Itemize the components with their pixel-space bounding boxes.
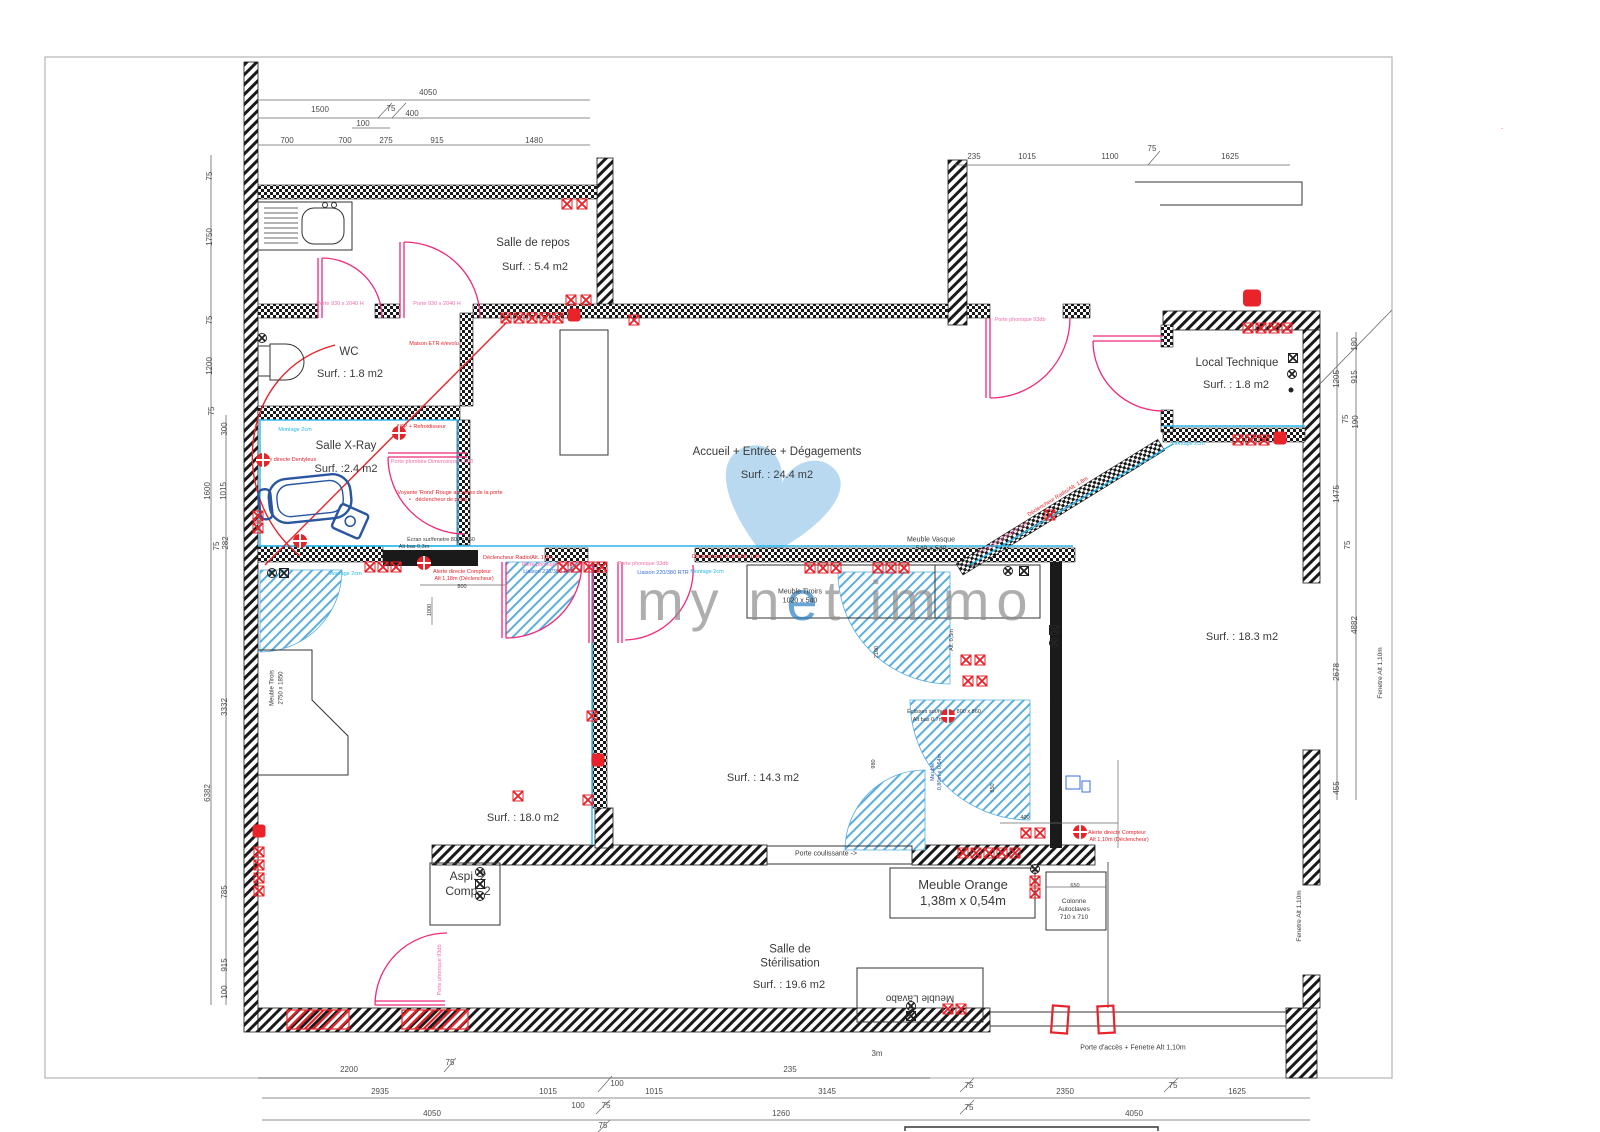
electrical-outlet-symbol [1289,388,1294,393]
electrical-outlet-symbol [513,791,524,802]
electrical-outlet-symbol [253,511,264,522]
electrical-outlet-symbol [279,568,289,578]
dimension-lines [211,100,1392,1132]
electrical-outlet-symbol [818,563,829,574]
electrical-outlet-symbol [553,313,564,324]
electrical-outlet-symbol [254,886,265,897]
solid-walls [383,550,1062,848]
floorplan-page: my net immo Salle de reposSurf. : 5.4 m2… [0,0,1600,1132]
electrical-outlet-symbol [1049,638,1059,648]
furniture-outlines [258,182,1302,1131]
electrical-outlet-symbol [956,1004,967,1015]
dental-chair [257,471,371,549]
electrical-outlet-symbol [592,754,605,767]
electrical-outlet-symbol [475,879,485,889]
electrical-outlet-symbol [571,562,582,573]
electrical-outlet-symbol [997,848,1008,859]
electrical-outlet-symbol [254,860,265,871]
electrical-outlet-symbol [961,655,972,666]
electrical-outlet-symbol [1259,435,1270,446]
electrical-outlet-symbol [805,563,816,574]
electrical-outlet-symbol [1003,566,1013,576]
electrical-outlet-symbol [583,795,594,806]
electrical-outlet-symbol [1030,876,1041,887]
electrical-outlet-symbol [253,523,264,534]
electrical-outlet-symbol [1073,825,1087,839]
electrical-outlet-symbol [417,556,431,570]
electrical-outlet-symbol [1019,566,1029,576]
electrical-outlet-symbol [253,825,266,838]
exterior-walls [244,62,1320,1078]
electrical-outlet-symbol [475,867,485,877]
electrical-outlet-symbol [958,848,969,859]
electrical-outlet-symbol [597,562,608,573]
electrical-outlet-symbol [566,295,577,306]
door-swing-sectors [260,562,1030,850]
electrical-outlet-symbol [629,315,640,326]
electrical-outlet-symbol [267,568,277,578]
electrical-outlet-symbol [1274,432,1287,445]
electrical-outlet-symbol [254,847,265,858]
electrical-outlet-symbol [906,1011,916,1021]
electrical-outlet-symbol [899,563,910,574]
electrical-outlet-symbol [1030,864,1040,874]
electrical-outlet-symbol [1035,828,1046,839]
electrical-outlet-symbol [984,848,995,859]
electrical-outlet-symbol [941,709,955,723]
electrical-outlet-symbol [501,313,512,324]
electrical-outlet-symbol [257,333,267,343]
electrical-outlet-symbol [558,562,569,573]
electrical-outlet-symbol [1243,290,1261,307]
electrical-outlet-symbol [254,873,265,884]
bottom-window-frames [1051,1005,1115,1033]
electrical-outlet-symbol [975,655,986,666]
electrical-outlet-symbol [577,199,588,210]
electrical-outlet-symbol [540,313,551,324]
electrical-outlet-symbol [906,1001,916,1011]
electrical-outlet-symbol [391,562,402,573]
electrical-outlet-symbol [1045,510,1056,521]
wc-icon [1066,776,1090,792]
electrical-outlet-symbol [527,313,538,324]
electrical-outlet-symbol [1256,323,1267,334]
electrical-outlet-symbol [1030,888,1041,899]
electrical-outlet-symbol [562,199,573,210]
electrical-outlet-symbol [1243,323,1254,334]
electrical-outlet-symbol [1049,625,1059,635]
electrical-outlet-symbol [581,295,592,306]
electrical-outlet-symbol [831,563,842,574]
electrical-outlet-symbol [514,313,525,324]
electrical-outlet-symbol [584,562,595,573]
electrical-outlet-symbol [475,891,485,901]
electrical-outlet-symbol [943,1004,954,1015]
electrical-outlet-symbol [256,453,270,467]
electrical-outlet-symbol [977,676,988,687]
electrical-outlet-symbol [1269,323,1280,334]
floorplan-drawing [0,0,1600,1132]
electrical-outlet-symbol [365,562,376,573]
electrical-outlet-symbol [1010,848,1021,859]
electrical-outlet-symbol [873,563,884,574]
electrical-outlet-symbol [1233,435,1244,446]
electrical-outlet-symbol [1282,323,1293,334]
electrical-outlet-symbol [392,426,406,440]
electrical-outlet-symbol [963,676,974,687]
electrical-outlet-symbol [1021,828,1032,839]
electrical-outlet-symbol [971,848,982,859]
electrical-outlet-symbol [1288,353,1298,363]
electrical-outlet-symbol [293,534,307,548]
electrical-outlet-symbol [886,563,897,574]
electrical-outlet-symbol [587,711,598,722]
electrical-outlet-symbol [568,309,581,322]
electrical-outlet-symbol [378,562,389,573]
electrical-outlet-symbol [1287,369,1297,379]
electrical-outlet-symbol [1246,435,1257,446]
